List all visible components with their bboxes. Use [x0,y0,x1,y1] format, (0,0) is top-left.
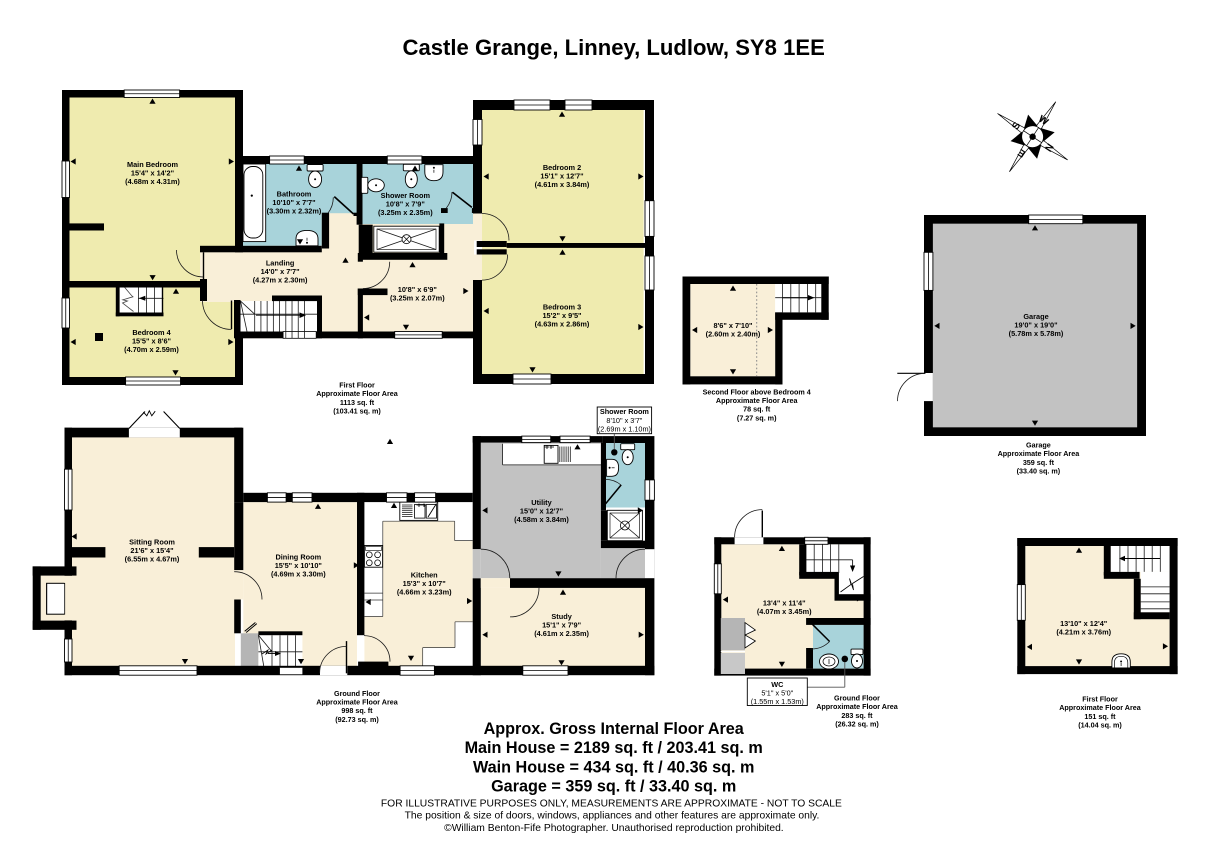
svg-text:(4.66m x 3.23m): (4.66m x 3.23m) [397,587,452,596]
svg-text:Approximate Floor Area: Approximate Floor Area [316,389,399,398]
svg-text:(7.27 sq. m): (7.27 sq. m) [737,413,777,422]
svg-text:Garage: Garage [1026,441,1051,450]
svg-text:(4.70m x 2.59m): (4.70m x 2.59m) [124,345,179,354]
svg-text:Garage = 359 sq. ft / 33.40 sq: Garage = 359 sq. ft / 33.40 sq. m [491,778,736,796]
svg-text:Castle Grange, Linney, Ludlow,: Castle Grange, Linney, Ludlow, SY8 1EE [403,35,825,60]
svg-text:(2.69m x 1.10m): (2.69m x 1.10m) [598,425,651,434]
svg-text:First Floor: First Floor [339,381,375,390]
svg-text:(1.55m x 1.53m): (1.55m x 1.53m) [751,697,804,706]
svg-text:Approximate Floor Area: Approximate Floor Area [1059,703,1142,712]
svg-text:(4.58m x 3.84m): (4.58m x 3.84m) [514,515,569,524]
svg-text:998 sq. ft: 998 sq. ft [341,706,373,715]
svg-text:Approximate Floor Area: Approximate Floor Area [998,449,1081,458]
svg-text:Approximate Floor Area: Approximate Floor Area [816,702,899,711]
svg-text:First Floor: First Floor [1082,695,1118,704]
svg-text:(4.63m x 2.86m): (4.63m x 2.86m) [535,320,590,329]
svg-text:(2.60m x 2.40m): (2.60m x 2.40m) [706,329,761,338]
svg-text:(103.41 sq. m): (103.41 sq. m) [333,407,381,416]
svg-text:Approx. Gross Internal Floor A: Approx. Gross Internal Floor Area [484,720,745,738]
svg-text:1113 sq. ft: 1113 sq. ft [340,398,375,407]
svg-text:78 sq. ft: 78 sq. ft [743,405,771,414]
svg-text:Main House = 2189 sq. ft / 203: Main House = 2189 sq. ft / 203.41 sq. m [465,739,763,757]
svg-text:(4.68m x 4.31m): (4.68m x 4.31m) [125,177,180,186]
svg-text:Wain House = 434 sq. ft / 40.3: Wain House = 434 sq. ft / 40.36 sq. m [473,758,754,776]
svg-text:(26.32 sq. m): (26.32 sq. m) [835,720,879,729]
svg-text:(6.55m x 4.67m): (6.55m x 4.67m) [125,555,180,564]
svg-text:(92.73 sq. m): (92.73 sq. m) [335,715,379,724]
svg-text:Second Floor above Bedroom 4: Second Floor above Bedroom 4 [703,387,811,396]
svg-text:(5.78m x 5.78m): (5.78m x 5.78m) [1009,329,1064,338]
svg-text:(4.07m x 3.45m): (4.07m x 3.45m) [757,607,812,616]
svg-text:Ground Floor: Ground Floor [334,689,380,698]
svg-text:(4.21m x 3.76m): (4.21m x 3.76m) [1056,628,1111,637]
svg-text:(4.27m x 2.30m): (4.27m x 2.30m) [253,276,308,285]
svg-text:Ground Floor: Ground Floor [834,693,880,702]
svg-text:(3.25m x 2.07m): (3.25m x 2.07m) [390,293,445,302]
svg-text:8'10" x 3'7": 8'10" x 3'7" [606,416,642,425]
svg-text:(3.30m x 2.32m): (3.30m x 2.32m) [267,206,322,215]
svg-text:(3.25m x 2.35m): (3.25m x 2.35m) [378,208,433,217]
svg-text:(4.61m x 3.84m): (4.61m x 3.84m) [535,180,590,189]
svg-text:FOR ILLUSTRATIVE PURPOSES ONLY: FOR ILLUSTRATIVE PURPOSES ONLY, MEASUREM… [381,799,842,810]
svg-text:(4.61m x 2.35m): (4.61m x 2.35m) [534,629,589,638]
svg-text:The position & size of doors,: The position & size of doors, windows, a… [405,811,820,822]
svg-text:©William Benton-Fife Photograp: ©William Benton-Fife Photographer. Unaut… [444,823,784,834]
svg-text:Shower Room: Shower Room [600,407,650,416]
svg-text:Approximate Floor Area: Approximate Floor Area [716,396,799,405]
svg-text:283 sq. ft: 283 sq. ft [841,711,873,720]
svg-text:(33.40 sq. m): (33.40 sq. m) [1017,467,1061,476]
svg-text:(14.04 sq. m): (14.04 sq. m) [1078,721,1122,730]
svg-text:(4.69m x 3.30m): (4.69m x 3.30m) [271,569,326,578]
svg-text:359 sq. ft: 359 sq. ft [1023,458,1055,467]
svg-text:151 sq. ft: 151 sq. ft [1084,712,1116,721]
svg-text:Approximate Floor Area: Approximate Floor Area [316,698,399,707]
